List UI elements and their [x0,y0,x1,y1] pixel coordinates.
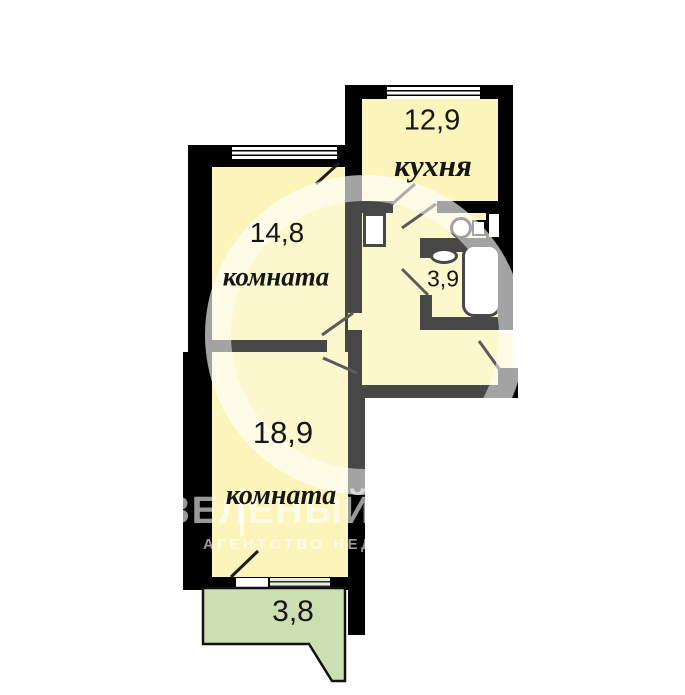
room1-name-label: комната [223,262,330,293]
room2-name-label: комната [226,480,337,512]
kitchen-area-label: 12,9 [404,105,460,138]
balcony-door-swing [231,551,258,577]
balcony-area-label: 3,8 [272,595,314,629]
room2-area-label: 18,9 [253,415,313,451]
floor-plan-canvas: ЗЕЛЕНЫЙ АГЕНТСТВО НЕДВИ 12,9 кухня 14,8 … [0,0,685,695]
kitchen-name-label: кухня [394,148,472,184]
watermark-subtitle: АГЕНТСТВО НЕДВИ [203,536,404,553]
room1-area-label: 14,8 [250,217,305,249]
bathroom-area-label: 3,9 [427,266,459,293]
